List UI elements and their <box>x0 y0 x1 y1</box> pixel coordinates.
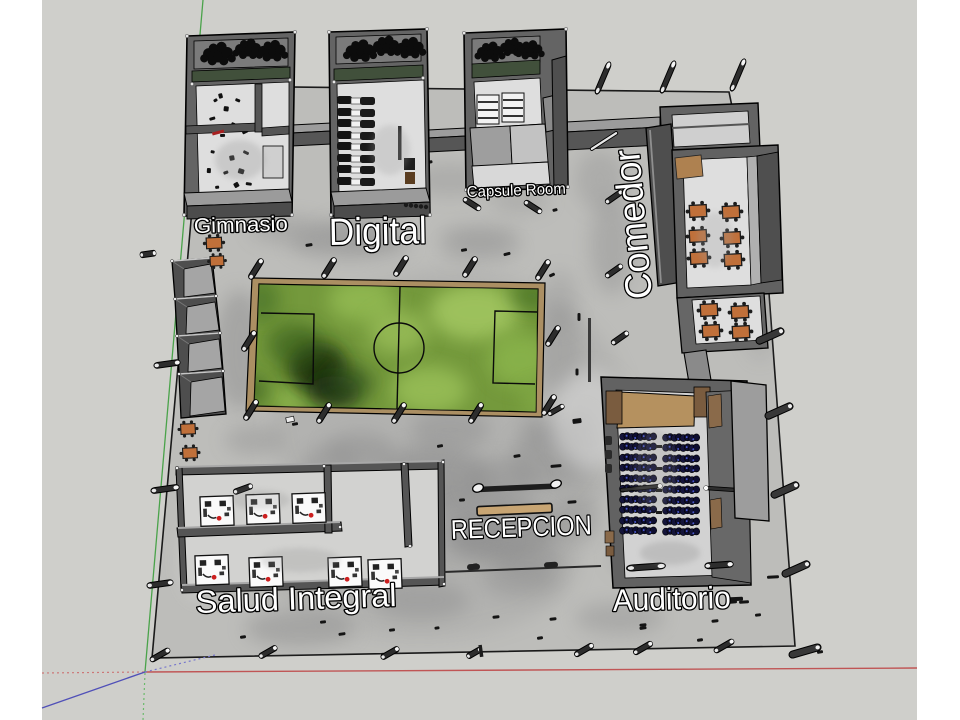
svg-text:Auditorio: Auditorio <box>612 580 731 618</box>
svg-text:RECEPCION: RECEPCION <box>450 510 592 545</box>
svg-text:Gimnasio: Gimnasio <box>194 213 289 238</box>
svg-text:Capsule Room: Capsule Room <box>467 181 567 201</box>
svg-text:Salud Integral: Salud Integral <box>195 577 397 620</box>
svg-text:Digital: Digital <box>328 210 427 254</box>
